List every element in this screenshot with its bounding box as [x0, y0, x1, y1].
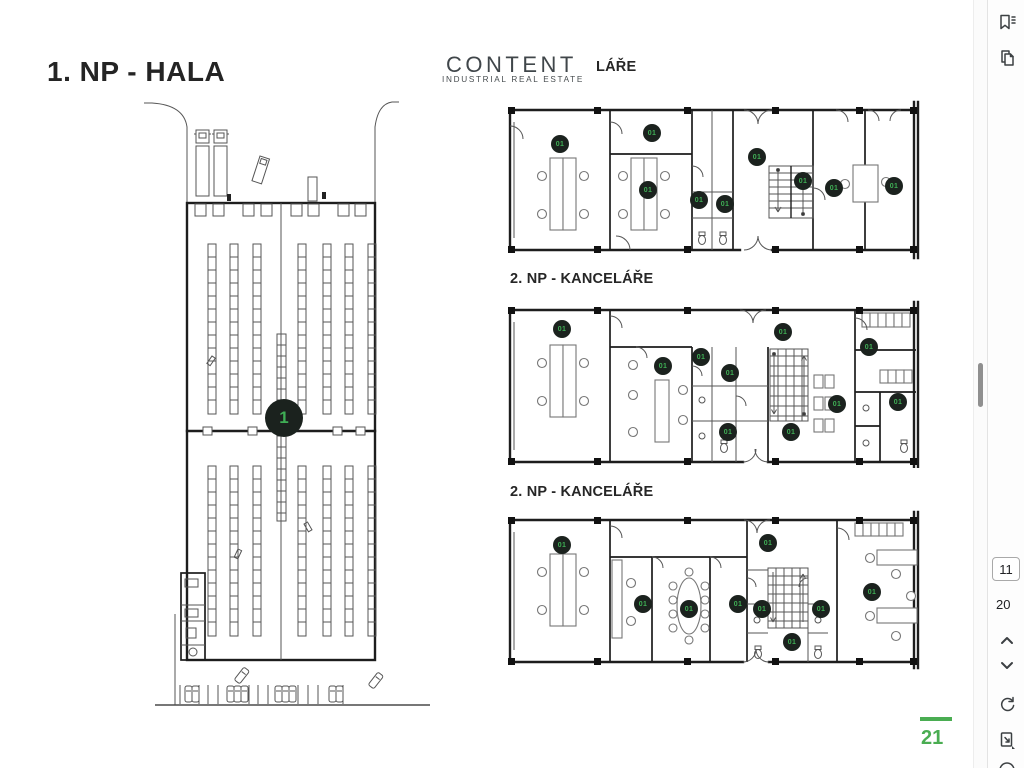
unit-badge: 01: [885, 177, 903, 195]
floor-plan-offices-2np-a: 01010101010101010101: [506, 296, 920, 468]
unit-badge: 01: [812, 600, 830, 618]
unit-badge: 01: [553, 320, 571, 338]
unit-badge: 01: [828, 395, 846, 413]
plan-a-drawing: [506, 96, 920, 264]
viewer-toolbar: 20: [987, 0, 1024, 768]
plan-c-drawing: [506, 508, 920, 670]
floor-plan-offices-1np: 010101010101010101: [506, 96, 920, 264]
unit-badge: 01: [863, 583, 881, 601]
unit-badge: 01: [551, 135, 569, 153]
unit-badge: 01: [753, 600, 771, 618]
unit-badge: 01: [719, 423, 737, 441]
scrollbar-thumb[interactable]: [978, 363, 983, 407]
current-page-input[interactable]: [992, 557, 1020, 581]
unit-badge: 1: [265, 399, 303, 437]
unit-badge: 01: [721, 364, 739, 382]
unit-badge: 01: [794, 172, 812, 190]
unit-badge: 01: [680, 600, 698, 618]
bookmarks-icon[interactable]: [997, 12, 1017, 32]
refresh-icon[interactable]: [997, 694, 1017, 714]
pdf-viewer-page: 1. NP - KANCELÁŘE CONTENT INDUSTRIAL REA…: [0, 0, 1024, 768]
section-title-2np-a: 2. NP - KANCELÁŘE: [510, 271, 653, 287]
unit-badge: 01: [783, 633, 801, 651]
page-up-icon[interactable]: [997, 630, 1017, 650]
export-page-icon[interactable]: [997, 730, 1017, 750]
logo-yellow-bar: [466, 30, 533, 50]
unit-badge: 01: [639, 181, 657, 199]
page-down-icon[interactable]: [997, 656, 1017, 676]
unit-badge: 01: [643, 124, 661, 142]
section-title-2np-b: 2. NP - KANCELÁŘE: [510, 484, 653, 500]
pages-icon[interactable]: [997, 48, 1017, 68]
unit-badge: 01: [692, 348, 710, 366]
unit-badge: 01: [860, 338, 878, 356]
document-page-number: 21: [921, 727, 943, 750]
unit-badge: 01: [889, 393, 907, 411]
floor-plan-hall: 1: [108, 94, 438, 714]
unit-badge: 01: [654, 357, 672, 375]
page-number-accent-bar: [920, 717, 952, 721]
unit-badge: 01: [716, 195, 734, 213]
unit-badge: 01: [634, 595, 652, 613]
more-icon[interactable]: [997, 760, 1017, 768]
unit-badge: 01: [553, 536, 571, 554]
total-pages-label: 20: [996, 597, 1010, 612]
page-title-hala: 1. NP - HALA: [47, 56, 225, 88]
logo-tagline: INDUSTRIAL REAL ESTATE: [442, 75, 584, 84]
unit-badge: 01: [782, 423, 800, 441]
unit-badge: 01: [825, 179, 843, 197]
unit-badge: 01: [690, 191, 708, 209]
content-logo: CONTENT INDUSTRIAL REAL ESTATE: [428, 2, 597, 94]
floor-plan-offices-2np-b: 010101010101010101: [506, 508, 920, 670]
unit-badge: 01: [759, 534, 777, 552]
unit-badge: 01: [729, 595, 747, 613]
logo-dark-column: [532, 13, 548, 55]
unit-badge: 01: [774, 323, 792, 341]
unit-badge: 01: [748, 148, 766, 166]
